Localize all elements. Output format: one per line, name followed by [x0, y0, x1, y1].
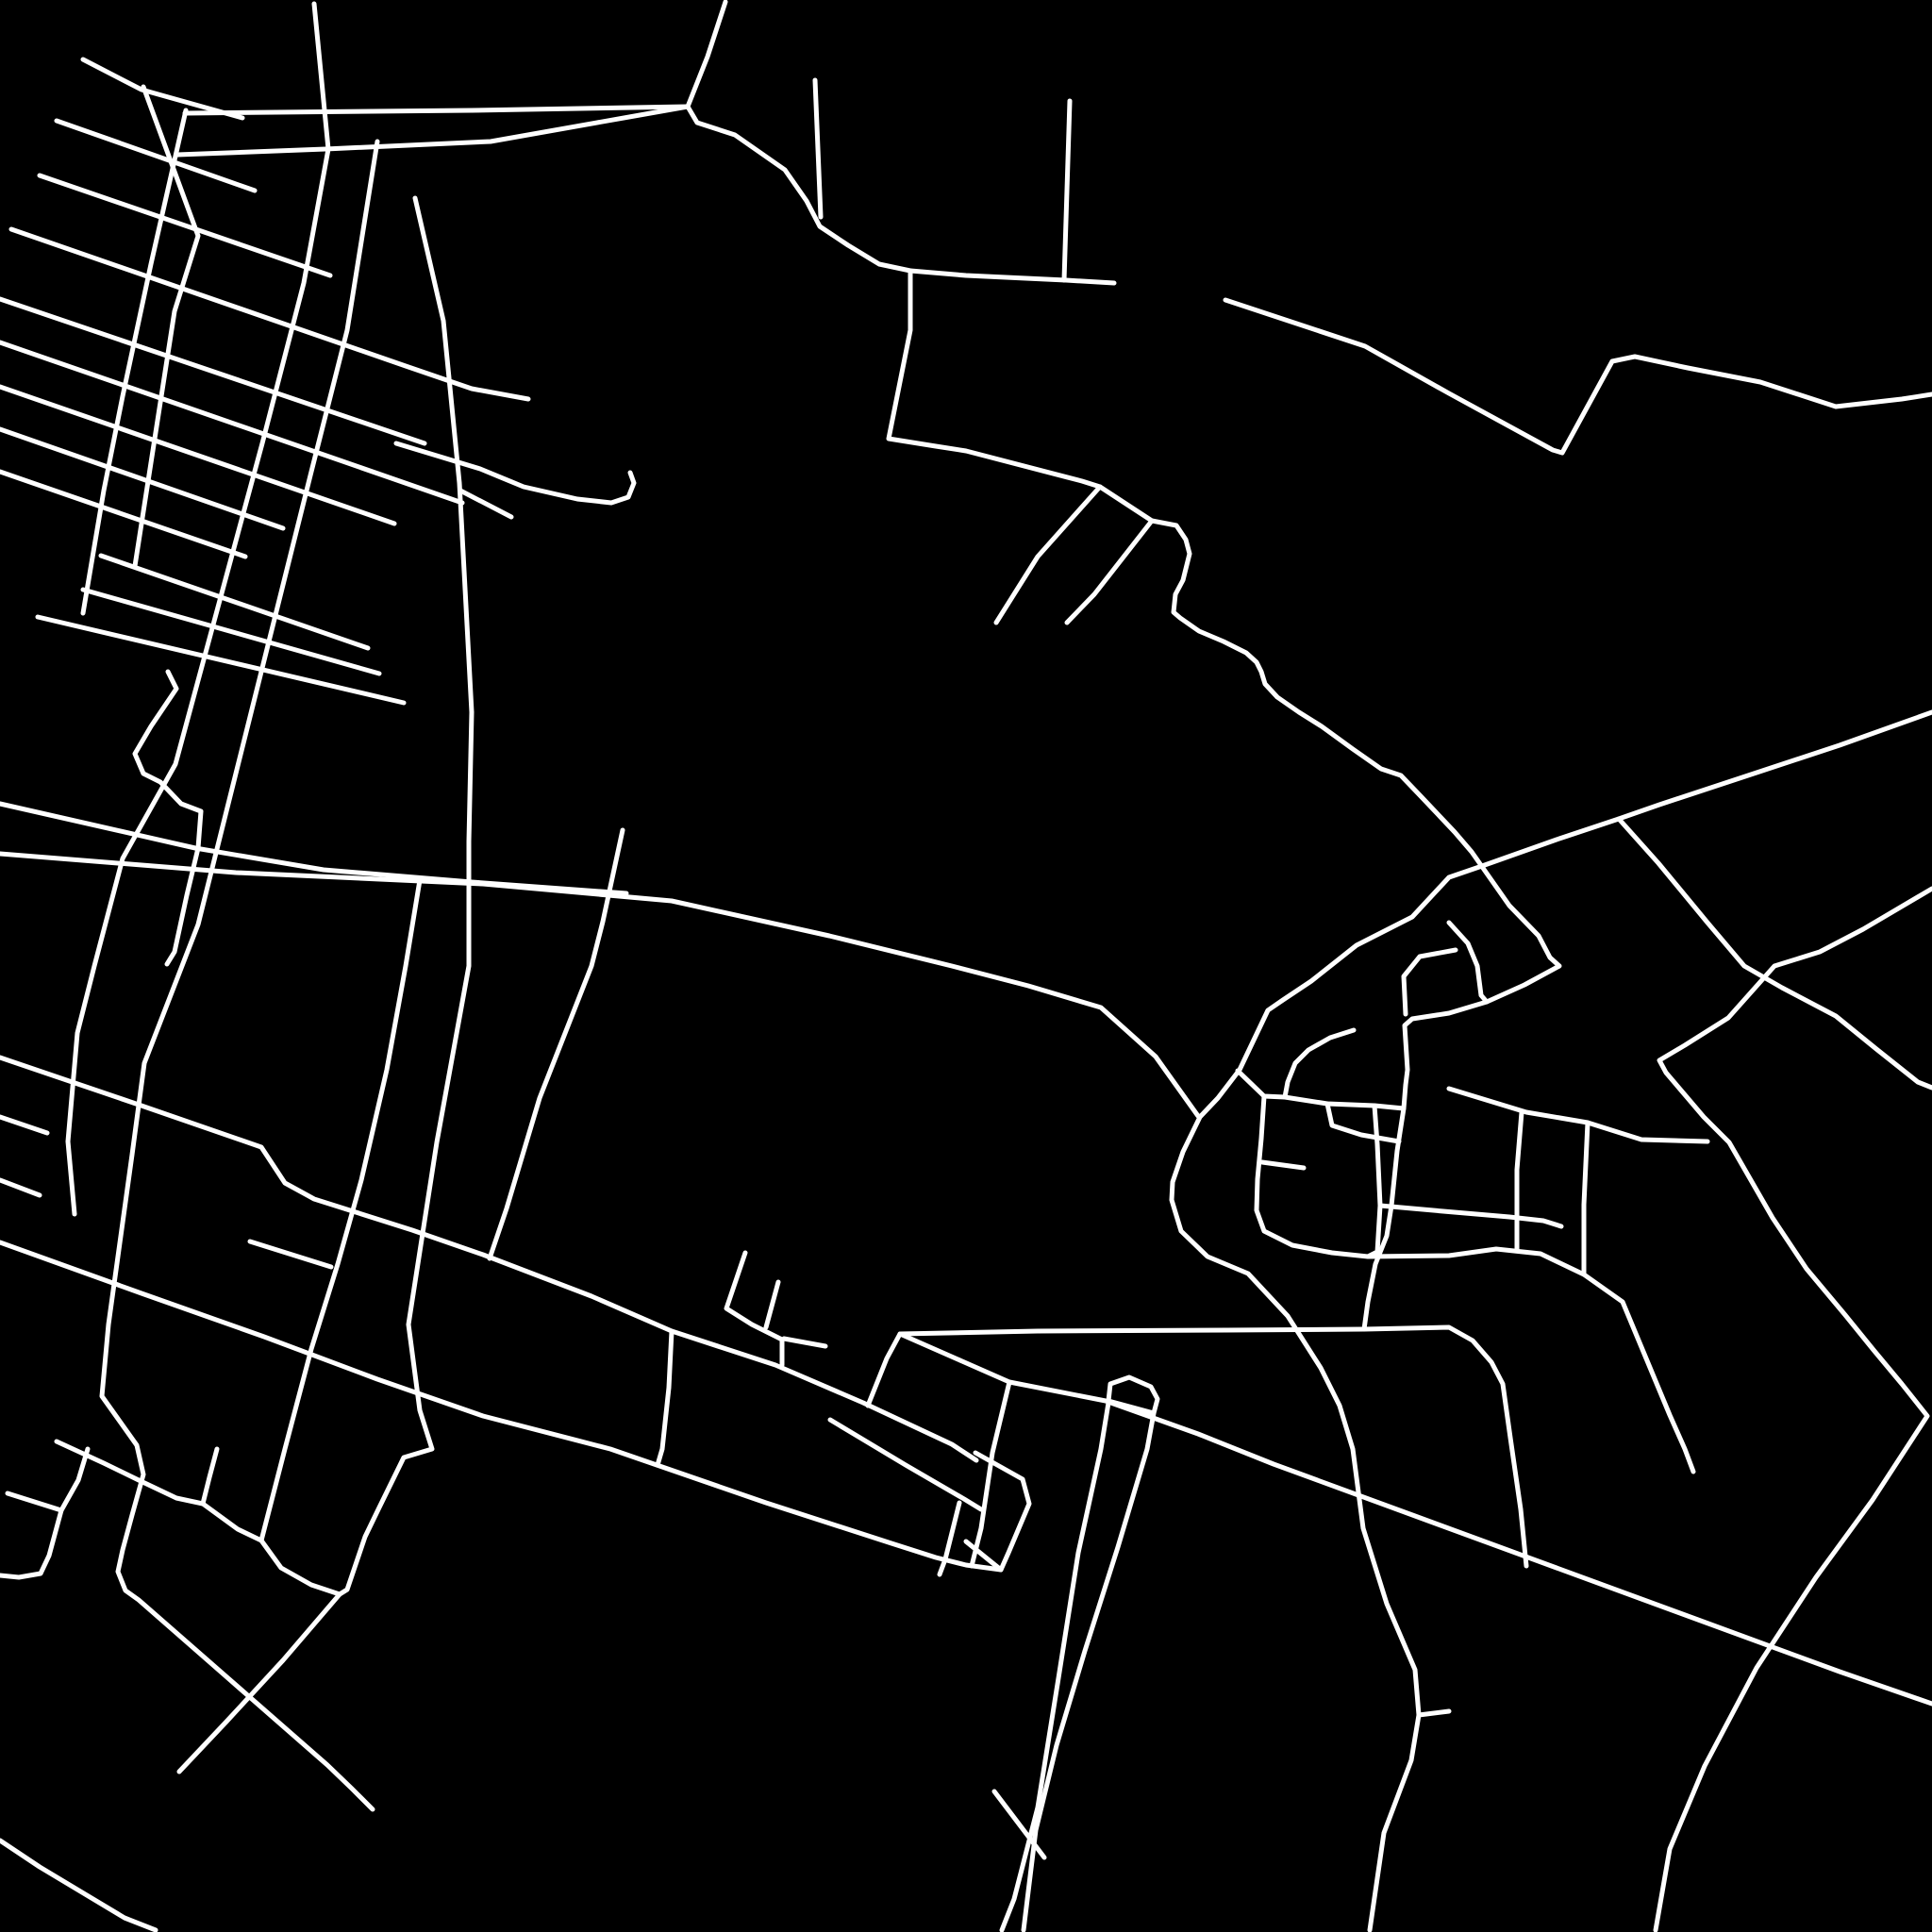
road-line-a-se: [1619, 819, 1932, 1088]
road-cluster-c12: [1449, 1089, 1707, 1141]
road-road-b2: [0, 854, 1198, 1116]
road-vert-v5: [261, 880, 420, 1541]
road-wedge-upper: [185, 107, 688, 113]
road-vert-v6: [340, 198, 472, 1594]
road-cluster-c4: [1368, 1106, 1380, 1257]
road-stub-mid: [250, 1241, 331, 1267]
road-top-vert-stub: [815, 80, 821, 217]
road-cluster-loop1: [1404, 950, 1456, 1014]
road-vert-spur-ne: [1064, 101, 1070, 280]
road-grid-top-h2: [57, 121, 255, 191]
road-elbow-stub: [1419, 1711, 1449, 1715]
road-stub-left-1: [0, 1117, 47, 1133]
road-stub-left-2: [0, 1180, 40, 1195]
road-pentagon-block: [1108, 1377, 1158, 1413]
road-cluster-z: [1327, 1104, 1399, 1141]
road-grid-h7: [0, 387, 394, 524]
road-cluster-arc: [1285, 1030, 1354, 1097]
road-main-road-curve: [688, 107, 910, 271]
road-vert-mid-low: [658, 1331, 672, 1465]
road-court-1: [726, 1253, 782, 1365]
road-short-d: [203, 1449, 217, 1504]
road-vert-v2: [68, 4, 328, 1214]
road-grid-h6: [0, 342, 462, 503]
road-east-branch: [910, 271, 1114, 283]
map-viewport[interactable]: [0, 0, 1932, 1932]
road-parallel-line-a: [830, 1420, 981, 1509]
road-grid-h9: [0, 472, 245, 557]
road-road3: [0, 1242, 1001, 1570]
road-main-road: [889, 271, 1559, 1329]
road-long-diag-se: [900, 1334, 1932, 1704]
road-vert-b-low: [1002, 1403, 1108, 1930]
road-vert-v3: [83, 110, 186, 613]
road-cluster-c11: [1584, 1123, 1588, 1274]
road-hook-stub: [460, 491, 511, 517]
road-map-canvas[interactable]: [0, 0, 1932, 1932]
road-grid-h5: [0, 299, 425, 443]
road-diag-h: [179, 1594, 340, 1772]
road-curve-bl-b: [0, 1449, 88, 1577]
road-grid-top-h3: [40, 175, 330, 275]
road-sbend-road: [0, 1058, 976, 1460]
road-parallel-spur-2: [1067, 521, 1152, 623]
road-cluster-bottom: [1257, 1096, 1693, 1472]
road-diag-e: [57, 1441, 340, 1594]
road-road-b1: [0, 804, 626, 893]
road-stub-bl-a: [8, 1493, 61, 1510]
road-wavy-bottom: [0, 1840, 156, 1930]
road-cluster-stub: [1262, 1162, 1304, 1168]
road-cluster-c10: [1517, 1112, 1522, 1250]
road-s-curve-road: [1172, 712, 1932, 1930]
road-wedge-lower: [177, 2, 725, 155]
road-grid-top-h1: [83, 59, 242, 118]
road-cluster-loop2: [1449, 923, 1487, 1002]
road-vert-a-low: [972, 1382, 1009, 1566]
road-cluster-c5: [1380, 1206, 1561, 1226]
road-u-switchback: [1656, 889, 1932, 1930]
road-court-3: [784, 1339, 825, 1346]
road-court-2: [766, 1282, 778, 1327]
road-top-right-road: [1225, 300, 1932, 453]
